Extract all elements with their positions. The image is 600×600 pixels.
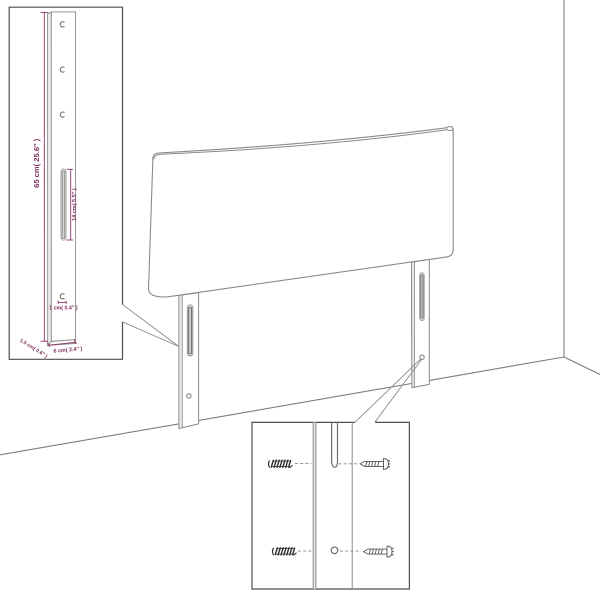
svg-text:1 cm( 0.4″ ): 1 cm( 0.4″ ) [49,306,78,312]
svg-text:14 cm( 5.5″ ): 14 cm( 5.5″ ) [72,188,78,221]
svg-text:65 cm( 25.6″ ): 65 cm( 25.6″ ) [32,138,41,188]
